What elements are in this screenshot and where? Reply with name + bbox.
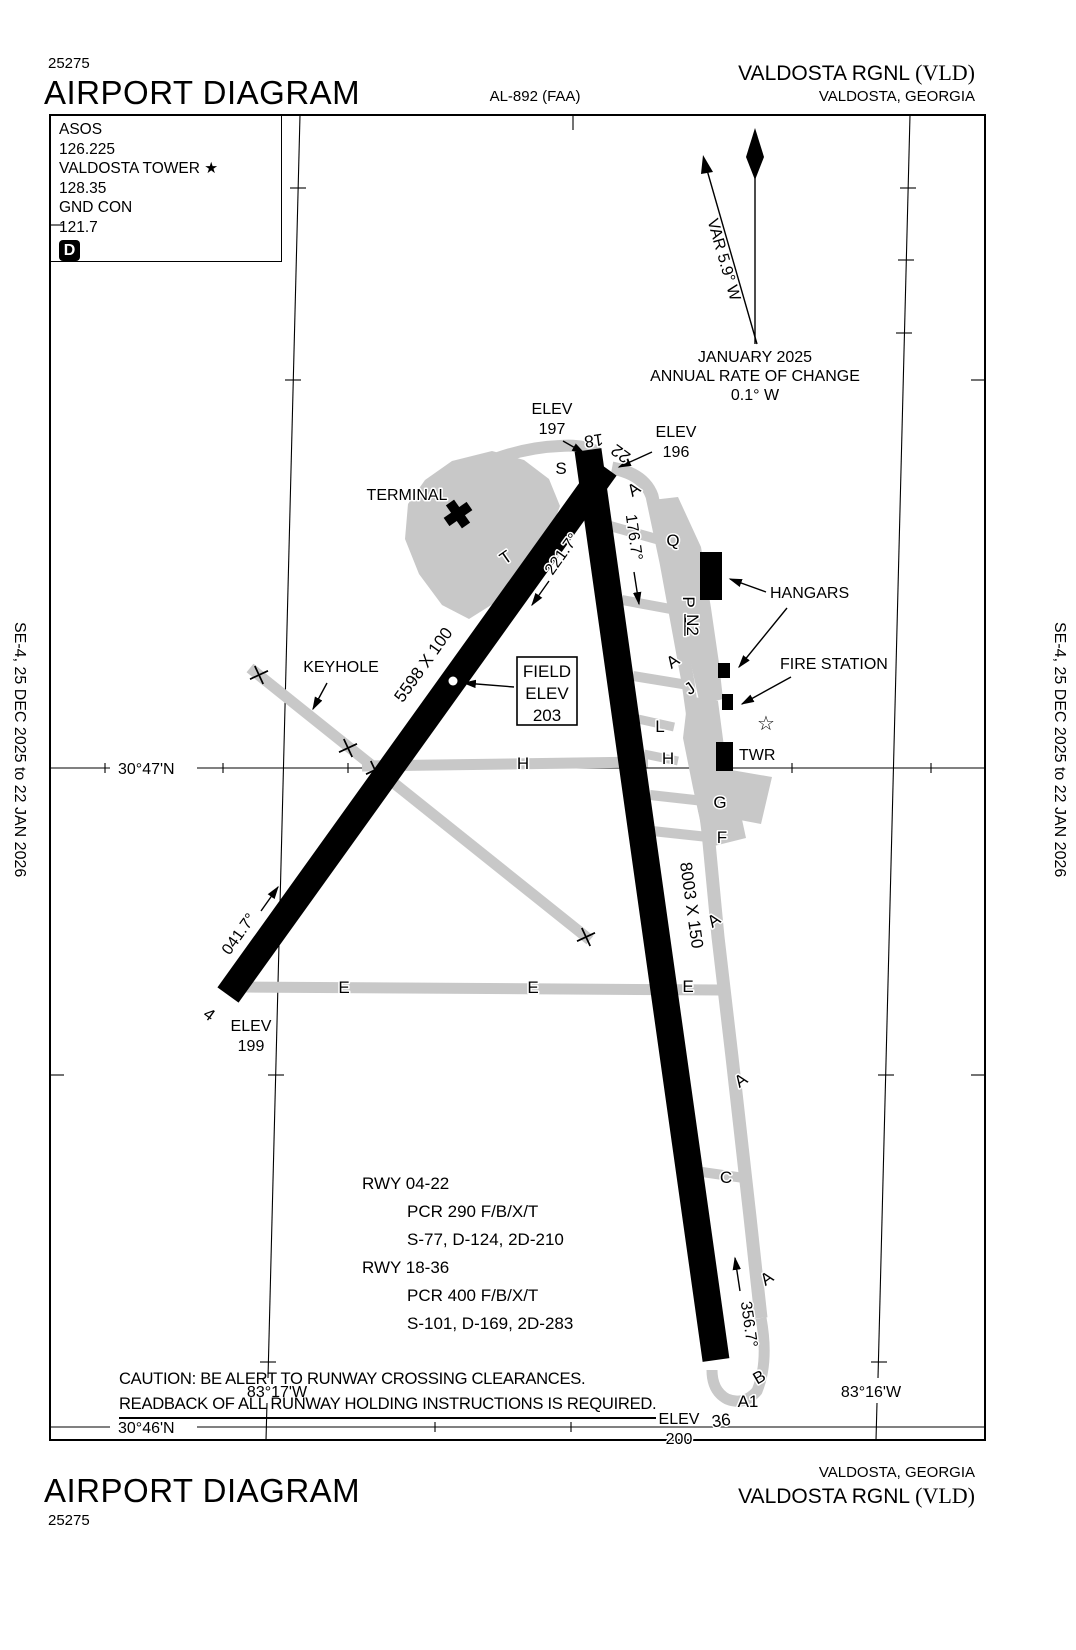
taxiway-label-e: E [682,977,693,996]
stub-f [652,831,708,837]
elev-196-line1: ELEV [656,424,697,441]
keyhole-label: KEYHOLE [303,659,379,676]
elev-197-line1: ELEV [532,401,573,418]
edition-note-left: SE-4, 25 DEC 2025 to 22 JAN 2026 [10,622,28,877]
caution-line1: CAUTION: BE ALERT TO RUNWAY CROSSING CLE… [119,1366,656,1391]
taxiway-label-q: Q [666,531,679,550]
page-title-bottom: AIRPORT DIAGRAM [44,1472,360,1510]
compass-rate-value: 0.1° W [731,387,780,404]
chart-number-bottom: 25275 [48,1512,90,1529]
tower-label: TWR [739,747,775,764]
runway-number-4: 4 [200,1004,219,1025]
elev-197-line2: 197 [539,421,566,438]
fire-station-building [722,694,733,710]
header-airport-block: VALDOSTA RGNL (VLD) VALDOSTA, GEORGIA [738,60,975,105]
elev-199-line1: ELEV [231,1018,272,1035]
comm-line: GND CON [59,198,281,218]
rwy-note-line: RWY 04-22 [362,1170,573,1198]
taxiway-label-n2: N2 [683,614,702,636]
comm-line: 121.7 [59,218,281,238]
stub-j [633,676,688,685]
taxiway-label-g: G [713,793,726,812]
compass-rose: VAR 5.9° W JANUARY 2025 ANNUAL RATE OF C… [650,128,860,404]
airport-icao-top: (VLD) [915,60,975,85]
elev-200-line2: 200 [666,1431,693,1448]
taxiway-label-s: S [555,459,566,478]
magnetic-north-arrowhead [701,155,713,174]
airport-icao-bottom: (VLD) [915,1483,975,1508]
elev-199-line2: 199 [238,1038,265,1055]
rwy-note-line: S-101, D-169, 2D-283 [362,1310,573,1338]
hangar-building-large [700,552,722,600]
field-elev-line3: 203 [533,706,561,725]
edition-note-right: SE-4, 25 DEC 2025 to 22 JAN 2026 [1050,622,1068,877]
heading-176: 176.7° [622,513,645,561]
compass-date: JANUARY 2025 [698,349,812,366]
comm-line: VALDOSTA TOWER ★ [59,159,281,179]
terminal-label: TERMINAL [367,487,448,504]
elev-200-line1: ELEV [659,1411,700,1428]
taxiway-label-e: E [338,978,349,997]
taxiway-label-p: P [679,596,698,607]
runway-data-block: RWY 04-22 PCR 290 F/B/X/T S-77, D-124, 2… [362,1170,573,1338]
comm-line: 128.35 [59,179,281,199]
runway-18-36-size: 8003 X 150 [676,861,707,950]
rwy-note-line: S-77, D-124, 2D-210 [362,1226,573,1254]
comm-line: ASOS [59,120,281,140]
taxiway-label-h: H [662,749,674,768]
taxiway-label-c: C [720,1168,732,1187]
field-elev-line2: ELEV [525,684,569,703]
lon-east-label: 83°16'W [841,1384,902,1401]
page-title-top: AIRPORT DIAGRAM [44,74,360,112]
keyhole-arrow [313,683,327,709]
taxiway-label-a1: A1 [738,1392,759,1411]
hangars-label: HANGARS [770,585,849,602]
tower-building [716,742,733,771]
fire-station-arrow [742,677,791,704]
variation-label: VAR 5.9° W [704,217,744,304]
field-elev-arrow [464,683,514,687]
true-north-arrowhead [746,128,764,180]
airport-name-bottom: VALDOSTA RGNL [738,1485,909,1508]
field-elev-line1: FIELD [523,662,571,681]
rwy-note-line: RWY 18-36 [362,1254,573,1282]
runway-number-18: 18 [583,430,604,451]
city-state-bottom: VALDOSTA, GEORGIA [738,1464,975,1481]
runway-number-36: 36 [711,1410,732,1431]
stub-g [650,795,704,801]
hdg-356-arrow [735,1258,740,1291]
airport-name-top: VALDOSTA RGNL [738,62,909,85]
lat-lower-label: 30°46'N [118,1420,175,1437]
elev-196-line2: 196 [663,444,690,461]
fire-station-label: FIRE STATION [780,656,888,673]
comm-line: 126.225 [59,140,281,160]
footer-airport-block: VALDOSTA, GEORGIA VALDOSTA RGNL (VLD) [738,1464,975,1509]
caution-block: CAUTION: BE ALERT TO RUNWAY CROSSING CLE… [119,1366,656,1419]
hangars-arrow-1 [730,579,766,592]
field-elevation-dot [449,677,458,686]
rwy-note-line: PCR 400 F/B/X/T [362,1282,573,1310]
city-state-top: VALDOSTA, GEORGIA [738,88,975,105]
compass-rate-label: ANNUAL RATE OF CHANGE [650,368,860,385]
procedure-id: AL-892 (FAA) [435,88,635,105]
rwy-note-line: PCR 290 F/B/X/T [362,1198,573,1226]
lat-upper-label: 30°47'N [118,761,175,778]
taxiway-label-e: E [527,978,538,997]
taxiway-label-l: L [655,717,664,736]
comm-frequency-box: ASOS 126.225 VALDOSTA TOWER ★ 128.35 GND… [50,115,282,262]
chart-number-top: 25275 [48,55,90,72]
taxiway-label-f: F [717,828,727,847]
taxiway-label-h: H [517,754,529,773]
caution-line2: READBACK OF ALL RUNWAY HOLDING INSTRUCTI… [119,1391,656,1419]
atis-d-badge: D [59,240,80,261]
beacon-star-icon: ☆ [757,713,775,735]
hangar-building-small [718,663,730,678]
